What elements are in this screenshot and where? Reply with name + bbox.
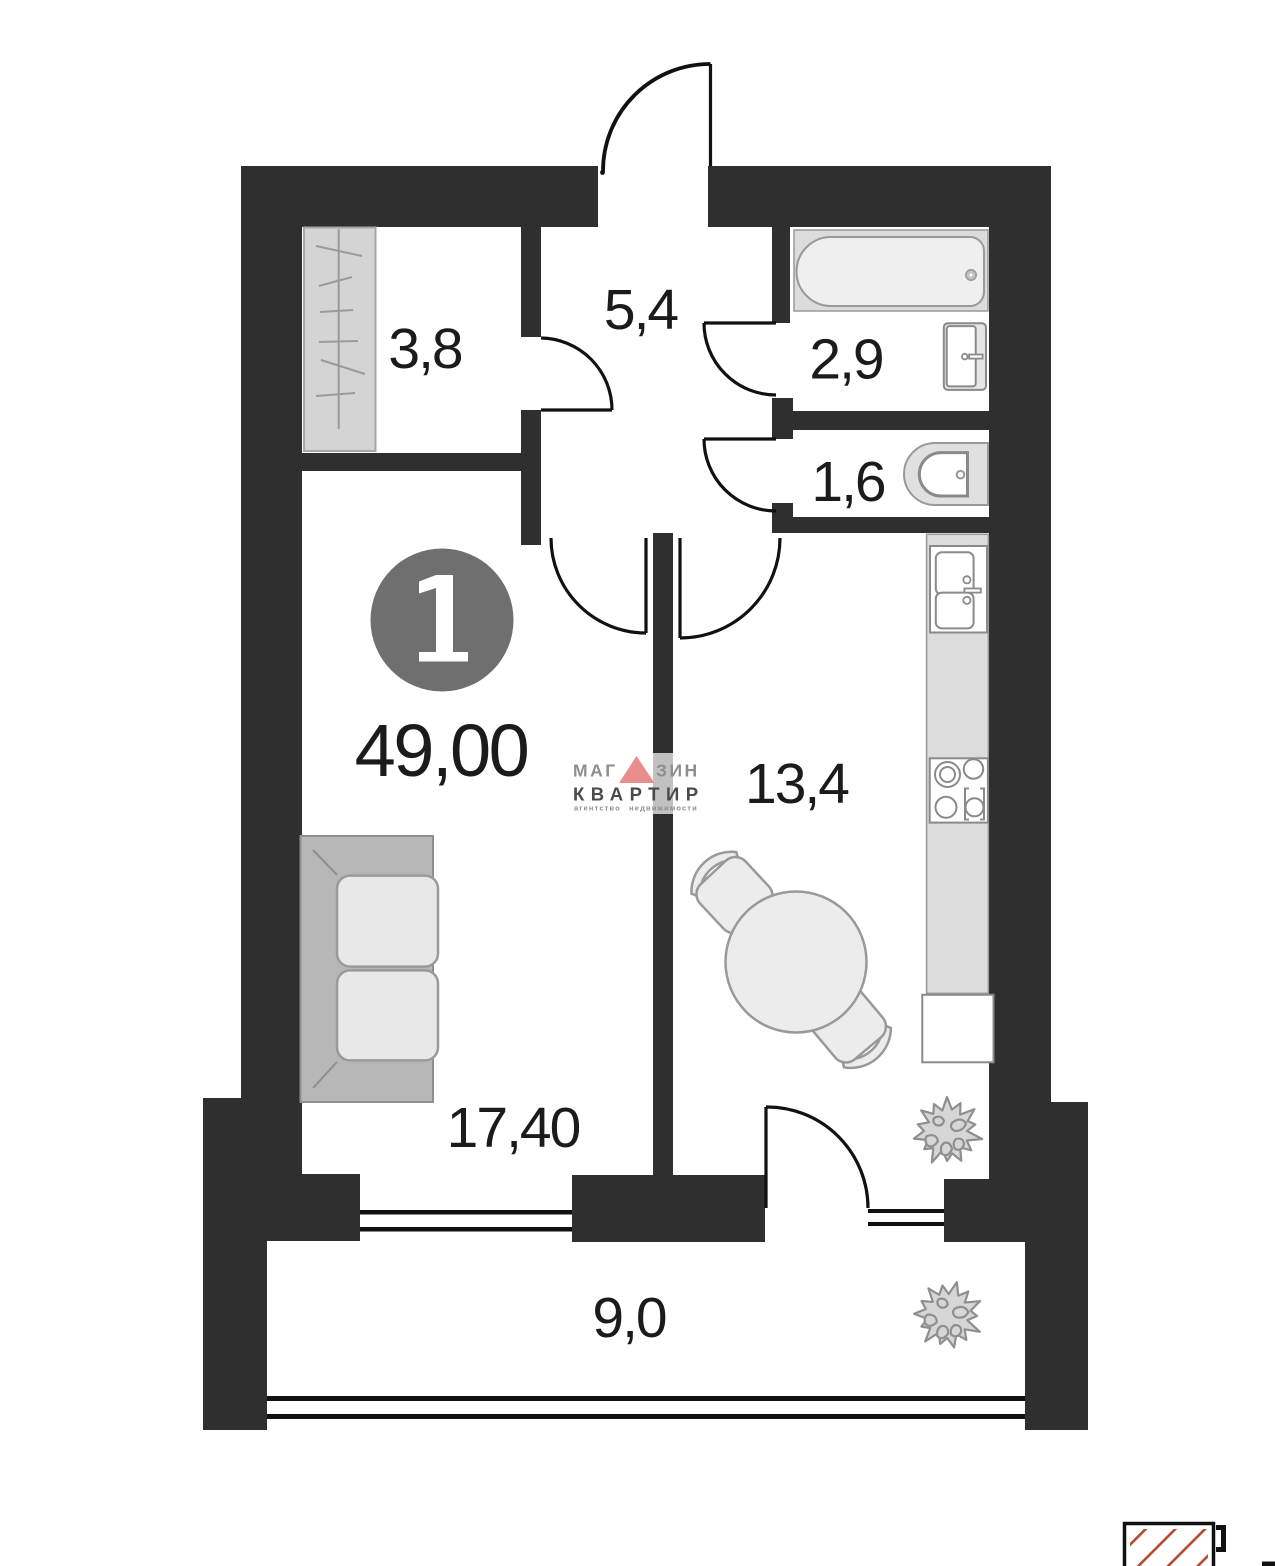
svg-text:МАГ: МАГ [573, 761, 618, 781]
svg-text:17,40: 17,40 [447, 1096, 580, 1160]
svg-text:13,4: 13,4 [745, 752, 849, 816]
svg-text:5,4: 5,4 [604, 278, 679, 342]
svg-text:2,9: 2,9 [809, 328, 882, 392]
svg-text:3,8: 3,8 [388, 317, 462, 381]
svg-text:КВАРТИР: КВАРТИР [573, 784, 705, 805]
svg-text:1,6: 1,6 [811, 450, 885, 514]
svg-text:9,0: 9,0 [592, 1286, 666, 1350]
svg-text:агентство недвижимости: агентство недвижимости [574, 804, 698, 813]
svg-text:49,00: 49,00 [355, 709, 528, 792]
svg-text:ЗИН: ЗИН [656, 761, 700, 781]
